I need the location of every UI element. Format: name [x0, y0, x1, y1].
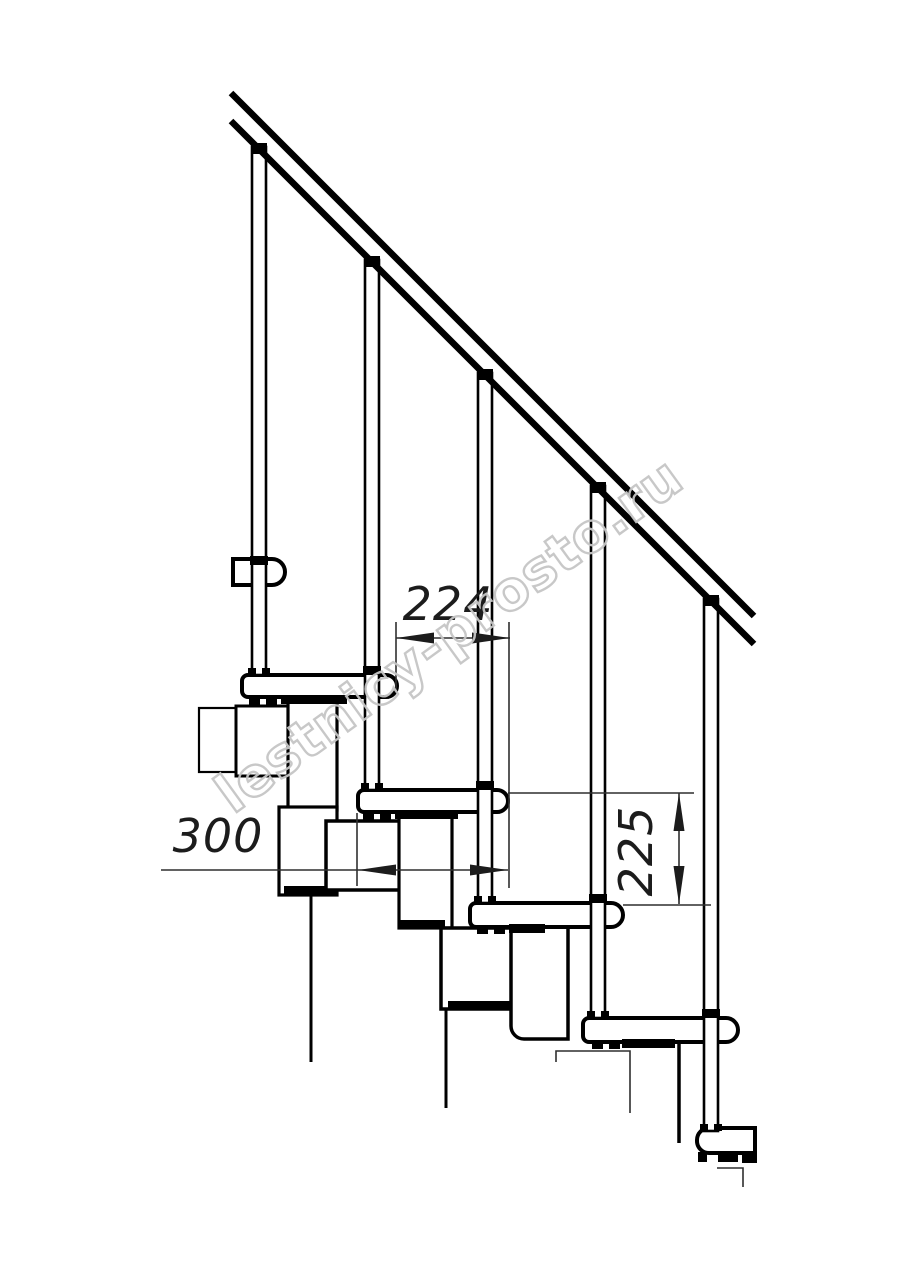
- baluster-1-base-tab-b: [262, 668, 270, 675]
- module-backline-step5: [717, 1168, 743, 1187]
- baluster-5-post: [704, 599, 718, 1131]
- watermark-text: lestnicy-prosto.ru: [204, 445, 695, 826]
- module-column-step3: [511, 924, 568, 1039]
- tread-5-clamp-b: [718, 1152, 738, 1162]
- tread-3-clamp-b: [494, 925, 505, 934]
- dim-225-label: 225: [609, 806, 663, 897]
- module-column-step2: [399, 816, 452, 928]
- tread-3-clamp-a: [477, 925, 488, 934]
- baluster-1-joint-band: [250, 556, 268, 565]
- baluster-4-base-tab-b: [601, 1011, 609, 1018]
- module-joint-step2: [399, 920, 445, 929]
- staircase-drawing: 224 300 225 lestnicy-prosto.ru: [0, 0, 914, 1280]
- staircase-drawing-page: 224 300 225 lestnicy-prosto.ru: [0, 0, 914, 1280]
- baluster-2-base-tab-b: [375, 783, 383, 790]
- module-clamp-step2: [326, 821, 407, 890]
- baluster-3-base-tab-b: [488, 896, 496, 903]
- module-joint-step3: [448, 1001, 511, 1010]
- tread-2-shadow: [395, 810, 458, 819]
- dim-225-arrow-down: [674, 866, 685, 904]
- baluster-3-joint-band: [476, 781, 494, 790]
- baluster-3-base-tab-a: [474, 896, 482, 903]
- tread-3-shadow: [509, 924, 545, 933]
- tread-4-clamp-b: [609, 1040, 620, 1049]
- module-clamp-step3: [441, 928, 518, 1009]
- baluster-4-joint-band: [589, 894, 607, 903]
- tread-5-clamp-a: [698, 1152, 707, 1162]
- baluster-5-base-tab-b: [714, 1124, 722, 1131]
- baluster-4-base-tab-a: [587, 1011, 595, 1018]
- dimension-225: 225: [508, 793, 711, 905]
- dim-225-arrow-up: [674, 793, 685, 831]
- baluster-1-base-tab-a: [248, 668, 256, 675]
- baluster-5-joint-band: [702, 1009, 720, 1018]
- baluster-5-base-tab-a: [700, 1124, 708, 1131]
- baluster-1: [248, 143, 270, 675]
- tread-1-clamp-b: [266, 696, 277, 705]
- baluster-5: [700, 595, 722, 1131]
- tread-4-clamp-a: [592, 1040, 603, 1049]
- module-backline-step4: [556, 1051, 630, 1113]
- tread-2-clamp-a: [363, 811, 374, 820]
- tread-4-shadow: [622, 1039, 675, 1048]
- baluster-2-base-tab-a: [361, 783, 369, 790]
- tread-2-clamp-b: [380, 811, 391, 820]
- baluster-1-post: [252, 147, 266, 675]
- tread-1-clamp-a: [249, 696, 260, 705]
- tread-5-shadow: [742, 1152, 757, 1163]
